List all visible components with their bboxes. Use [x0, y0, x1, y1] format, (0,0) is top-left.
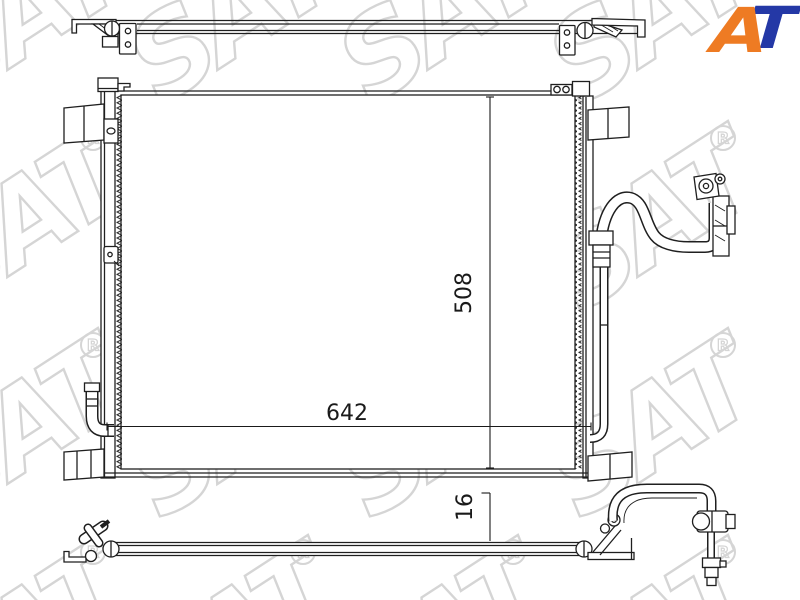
right-rail-top-cap: [573, 82, 590, 97]
lower-left-mount-block: [64, 449, 104, 480]
left-header-rail: [101, 90, 115, 478]
page: SAT R: [0, 0, 800, 600]
left-rail-top-cap: [98, 78, 118, 92]
width-dimension-label: 642: [326, 401, 368, 426]
left-fin-edge: [115, 95, 122, 469]
right-header-rail: [583, 96, 593, 478]
upper-right-mount-block: [588, 107, 629, 140]
lower-right-mount-block: [588, 452, 632, 481]
service-valve: [703, 558, 721, 568]
condenser-technical-diagram: SAT R: [0, 0, 800, 600]
thickness-dimension-label: 16: [453, 493, 478, 521]
height-dimension-label: 508: [452, 272, 477, 314]
rail-pipe-fitting: [589, 231, 613, 245]
left-rail-clip: [104, 247, 119, 267]
right-fin-edge: [575, 96, 582, 469]
